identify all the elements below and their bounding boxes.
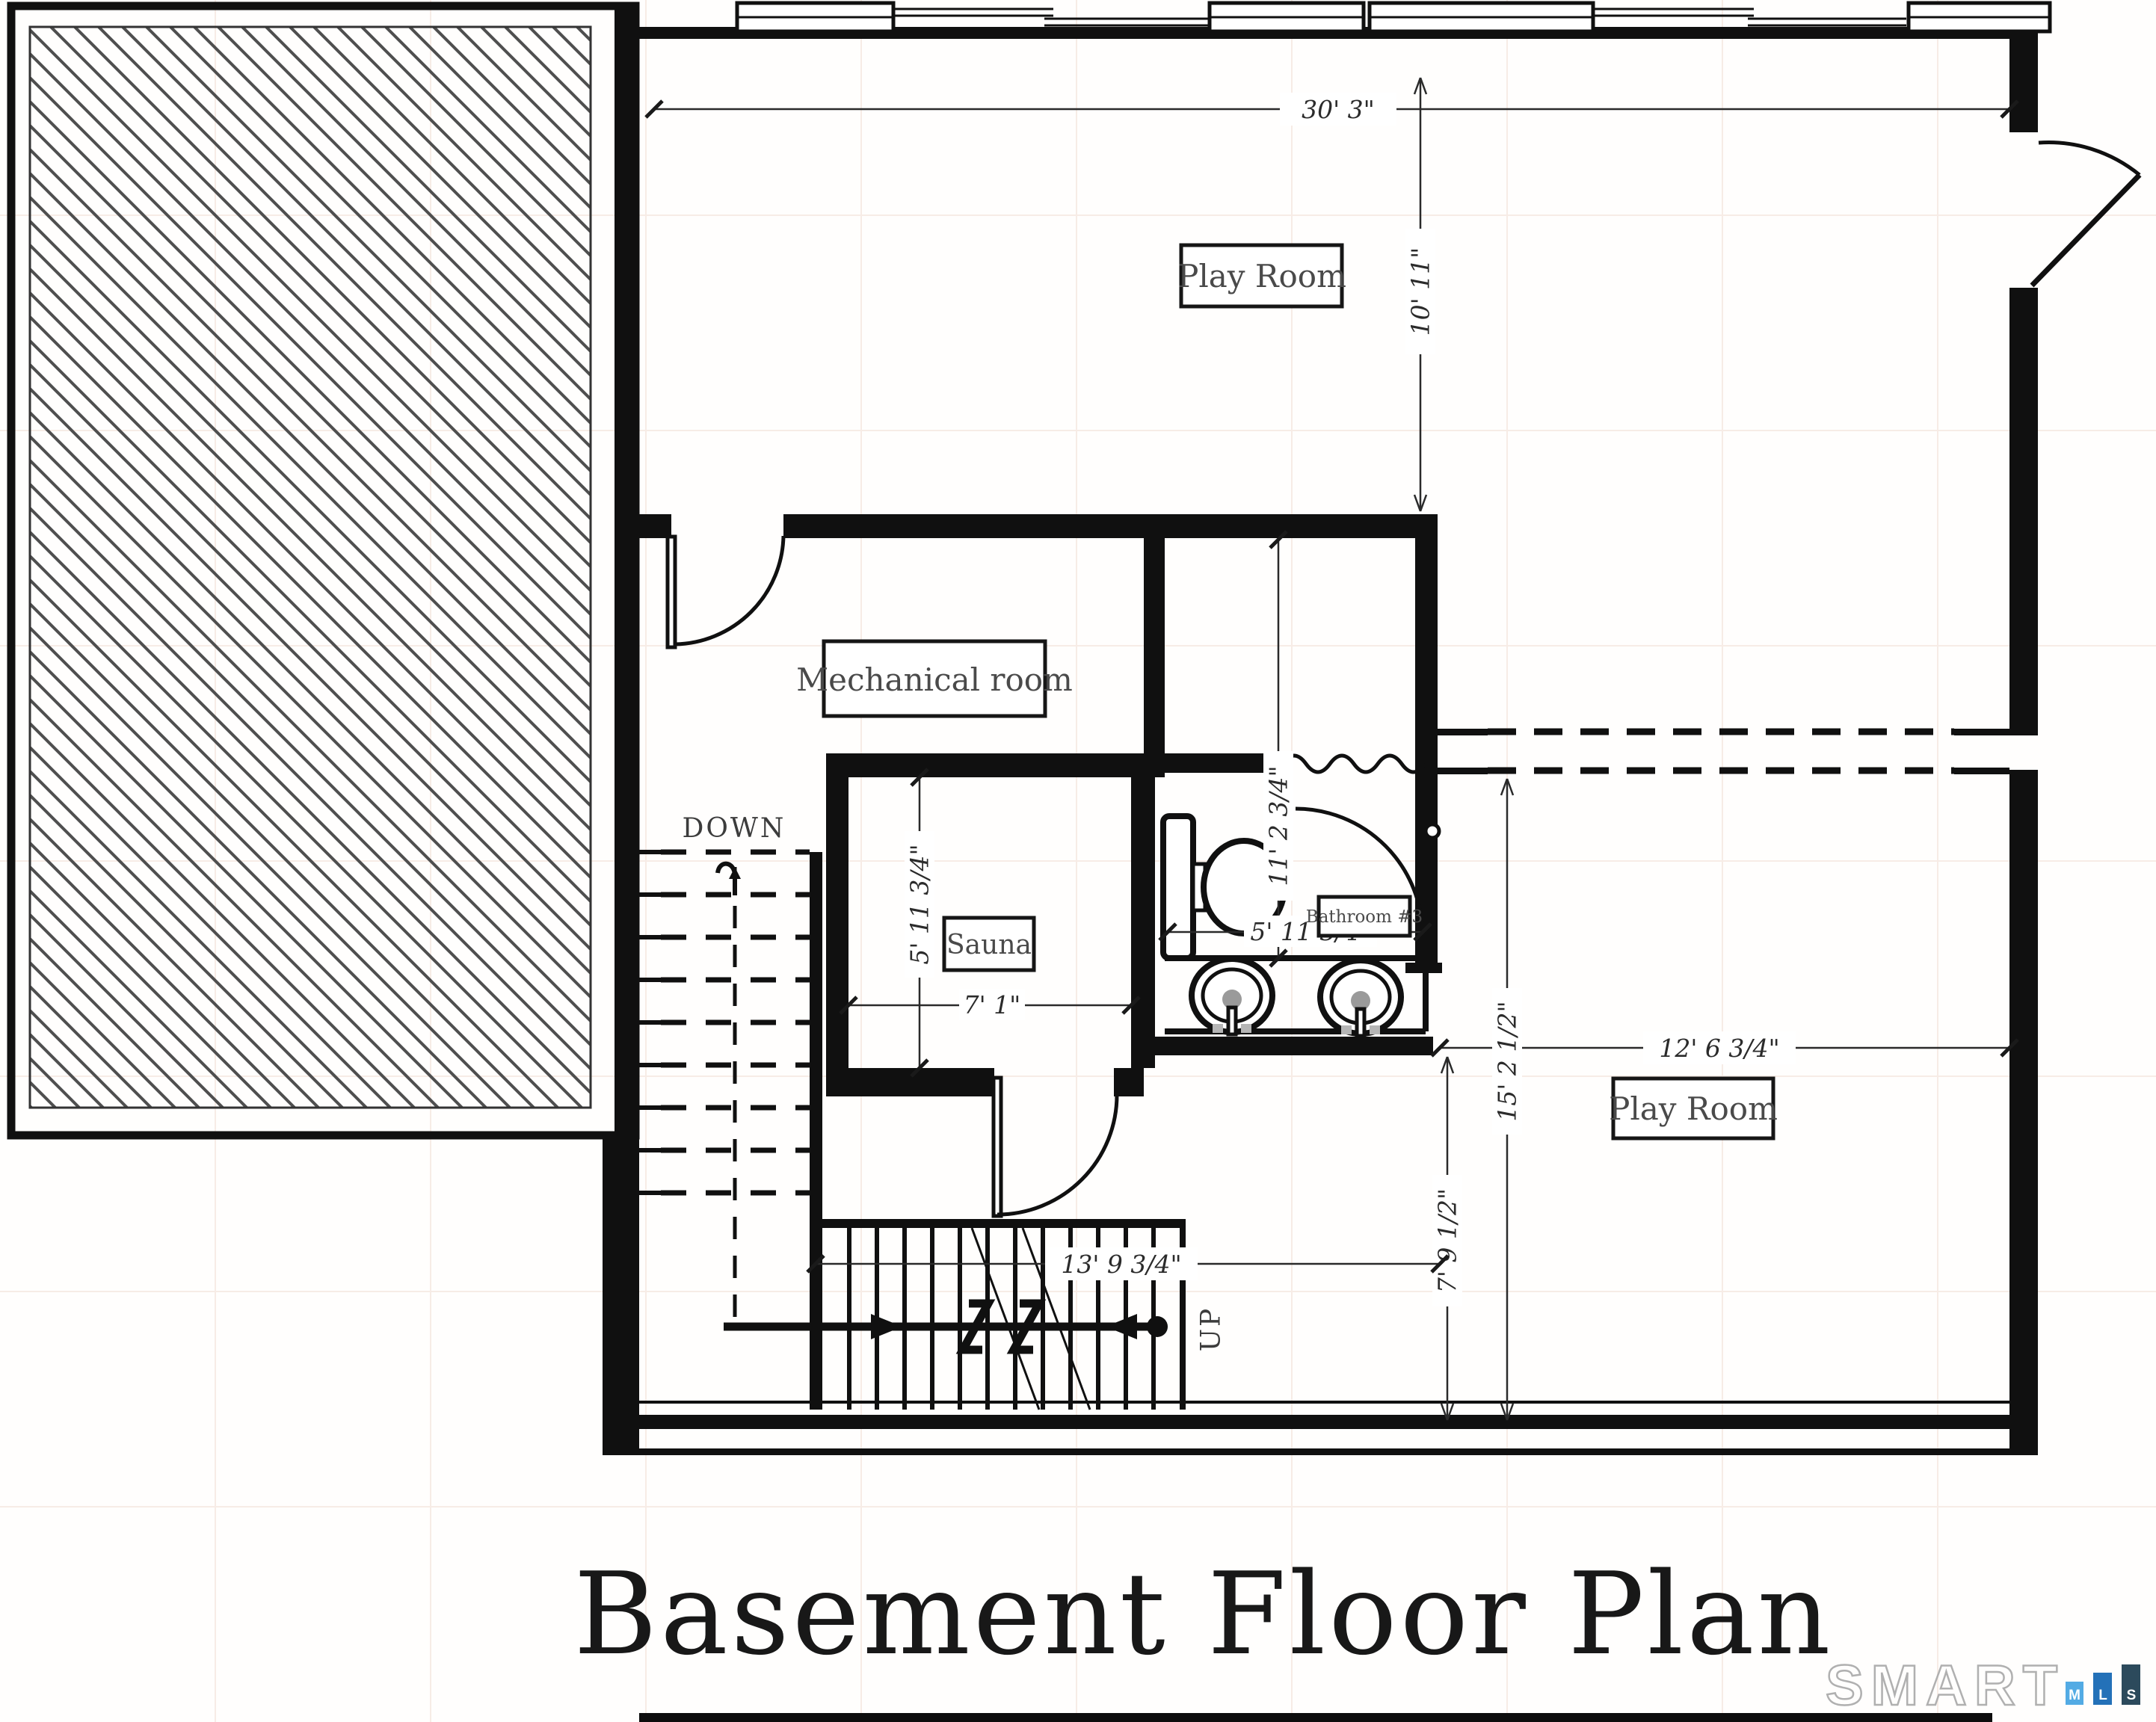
down-arrow-icon bbox=[718, 864, 735, 895]
logo-letter-s: S bbox=[2127, 1688, 2137, 1703]
stair-landing-edge bbox=[822, 1219, 1184, 1228]
south-wall-outer bbox=[603, 1448, 2038, 1455]
stair-direction-arrow bbox=[724, 1303, 1168, 1350]
stair-label-up: UP bbox=[1196, 1306, 1227, 1352]
dim-overall-width: 30' 3" bbox=[646, 93, 2018, 126]
sink-icon bbox=[1320, 960, 1401, 1036]
door-knob-icon bbox=[1426, 824, 1439, 838]
room-label-mechanical: Mechanical room bbox=[796, 661, 1073, 698]
door-leaf bbox=[994, 1078, 1001, 1216]
arrowhead-right-icon bbox=[871, 1314, 902, 1339]
logo-letter-m: M bbox=[2069, 1688, 2080, 1703]
stair-label-down: DOWN bbox=[683, 813, 786, 844]
logo-letter-l: L bbox=[2098, 1688, 2107, 1703]
dim-sauna-depth: 5' 11 3/4" bbox=[905, 769, 934, 1076]
dim-label: 15' 2 1/2" bbox=[1493, 1001, 1522, 1121]
floor-plan-drawing: 30' 3" 10' 11" 11' 2 3/4" 5' 11 3/4" bbox=[0, 0, 2156, 1722]
dim-label: 7' 9 1/2" bbox=[1433, 1188, 1462, 1293]
south-wall bbox=[639, 1415, 2009, 1429]
playroom-south-wall-left bbox=[639, 514, 671, 538]
dim-label: 13' 9 3/4" bbox=[1061, 1250, 1181, 1279]
room-label-playroom-right: Play Room bbox=[1609, 1090, 1778, 1127]
playroom-south-wall bbox=[783, 514, 1438, 538]
shower-curtain-icon bbox=[1282, 756, 1425, 772]
opening-stub-left-b bbox=[1438, 768, 1488, 774]
arrow-start-dot bbox=[1147, 1316, 1168, 1337]
vanity-back-wall bbox=[1144, 1037, 1433, 1055]
dim-sauna-width: 7' 1" bbox=[840, 989, 1139, 1020]
dim-playroom-top-depth: 10' 11" bbox=[1405, 78, 1435, 511]
room-label-sauna: Sauna bbox=[946, 930, 1032, 960]
sink-icon bbox=[1192, 959, 1272, 1034]
dim-label: 30' 3" bbox=[1302, 95, 1375, 124]
floor-plan-page: 30' 3" 10' 11" 11' 2 3/4" 5' 11 3/4" bbox=[0, 0, 2156, 1722]
sauna-south-wall bbox=[826, 1068, 994, 1096]
dim-label: 11' 2 3/4" bbox=[1264, 765, 1293, 886]
opening-stub-left-a bbox=[1438, 729, 1488, 735]
down-stairs bbox=[632, 852, 810, 1323]
dim-label: 12' 6 3/4" bbox=[1659, 1034, 1779, 1063]
sauna-east-wall bbox=[1131, 777, 1155, 1068]
sauna-north-wall bbox=[826, 753, 1144, 777]
down-arrowhead-icon bbox=[729, 867, 741, 879]
dashed-opening bbox=[1488, 732, 1954, 771]
dim-label: 7' 1" bbox=[964, 990, 1021, 1019]
east-wall-upper bbox=[2009, 30, 2038, 132]
opening-stub-right-b bbox=[1954, 768, 2009, 774]
page-title: Basement Floor Plan bbox=[573, 1548, 1833, 1680]
arrowhead-left-icon bbox=[1106, 1314, 1137, 1339]
door-arc bbox=[2039, 143, 2140, 175]
door-leaf bbox=[668, 537, 675, 647]
bottom-divider-bar bbox=[639, 1713, 1992, 1722]
door-leaf bbox=[2032, 175, 2140, 286]
dim-playroom-right-depth: 15' 2 1/2" bbox=[1492, 779, 1522, 1420]
sauna-west-wall bbox=[826, 777, 848, 1096]
dim-stair-run: 7' 9 1/2" bbox=[1432, 1057, 1462, 1420]
sauna-south-stub bbox=[1114, 1068, 1144, 1096]
room-label-playroom-top: Play Room bbox=[1177, 258, 1346, 294]
room-label-bathroom: Bathroom #3 bbox=[1306, 907, 1423, 927]
east-wall-lower bbox=[2009, 770, 2038, 1448]
opening-stub-right-a bbox=[1954, 729, 2009, 735]
logo-brand-text: SMART bbox=[1826, 1654, 2065, 1718]
door-arc bbox=[997, 1095, 1117, 1215]
dim-label: 5' 11 3/4" bbox=[905, 844, 934, 964]
south-wall-inner-line bbox=[639, 1401, 2009, 1404]
dim-label: 10' 11" bbox=[1406, 247, 1435, 336]
door-arc bbox=[675, 536, 783, 644]
unexcavated-hatch bbox=[30, 27, 591, 1108]
unexcavated-area bbox=[11, 6, 635, 1135]
smartmls-logo: SMART M L S bbox=[1826, 1654, 2140, 1718]
east-wall-mid bbox=[2009, 288, 2038, 735]
west-lower-wall bbox=[603, 1135, 639, 1454]
mech-bath-divider-wall bbox=[1144, 538, 1165, 777]
